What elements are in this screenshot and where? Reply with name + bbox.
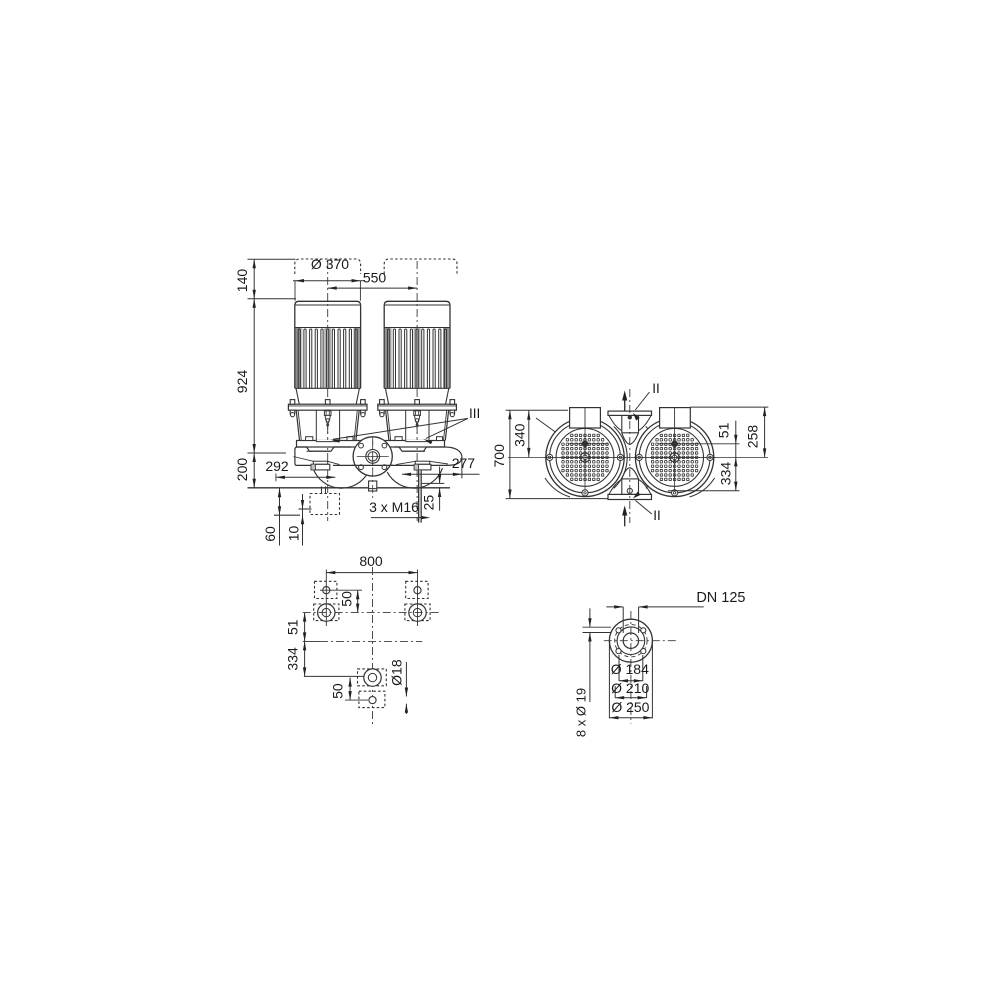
svg-text:340: 340 (511, 423, 527, 447)
svg-text:III: III (469, 406, 480, 421)
svg-text:8 x Ø 19: 8 x Ø 19 (573, 688, 588, 737)
svg-text:Ø 250: Ø 250 (611, 699, 649, 715)
svg-text:800: 800 (359, 553, 383, 569)
svg-text:200: 200 (234, 458, 250, 482)
svg-text:Ø 184: Ø 184 (611, 661, 649, 677)
svg-text:140: 140 (234, 269, 250, 293)
svg-text:258: 258 (745, 425, 761, 449)
svg-text:277: 277 (452, 455, 476, 471)
svg-text:25: 25 (421, 495, 437, 511)
svg-text:Ø 370: Ø 370 (311, 256, 349, 272)
svg-text:334: 334 (285, 647, 301, 671)
svg-text:50: 50 (330, 683, 346, 699)
svg-text:DN 125: DN 125 (696, 590, 745, 606)
svg-text:50: 50 (339, 591, 355, 607)
svg-text:II: II (653, 508, 661, 523)
svg-text:Ø18: Ø18 (388, 659, 404, 686)
svg-text:700: 700 (491, 444, 507, 468)
svg-text:60: 60 (262, 526, 278, 542)
svg-text:51: 51 (285, 619, 301, 635)
svg-text:550: 550 (363, 270, 387, 286)
svg-text:334: 334 (718, 462, 734, 486)
svg-text:II: II (652, 381, 660, 396)
svg-text:924: 924 (234, 370, 250, 394)
svg-text:292: 292 (265, 458, 289, 474)
svg-text:Ø 210: Ø 210 (611, 680, 649, 696)
svg-text:3 x M16: 3 x M16 (369, 499, 419, 515)
svg-text:51: 51 (716, 422, 732, 438)
svg-text:10: 10 (286, 526, 302, 542)
